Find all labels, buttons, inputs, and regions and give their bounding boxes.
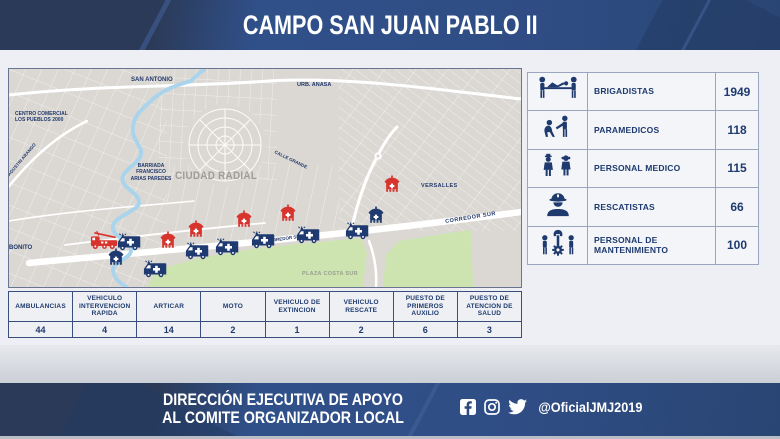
medical-staff-icon	[538, 152, 578, 185]
footer-title: DIRECCIÓN EJECUTIVA DE APOYO AL COMITE O…	[141, 391, 425, 427]
footer-title-line1: DIRECCIÓN EJECUTIVA DE APOYO	[141, 391, 425, 409]
footer-banner: DIRECCIÓN EJECUTIVA DE APOYO AL COMITE O…	[0, 383, 780, 436]
vehicle-table: AMBULANCIAS VEHICULO INTERVENCION RAPIDA…	[8, 291, 522, 338]
twitter-icon	[508, 399, 527, 415]
rescuer-helmet-icon	[539, 191, 577, 223]
personnel-row-brigadistas: BRIGADISTAS 1949	[528, 73, 758, 110]
infographic-page: CAMPO SAN JUAN PABLO II	[0, 0, 780, 439]
footer-title-line2: AL COMITE ORGANIZADOR LOCAL	[141, 409, 425, 427]
map-marker-first-aid-post-red-icon	[160, 232, 177, 249]
map-marker-first-aid-post-red-icon	[188, 221, 205, 238]
separator-band	[0, 345, 780, 383]
vehicle-header-articar: ARTICAR	[137, 292, 200, 321]
personnel-label: BRIGADISTAS	[588, 73, 715, 110]
map-marker-first-aid-post-red-icon	[280, 205, 297, 222]
vehicle-header-extincion: VEHICULO DE EXTINCION	[266, 292, 329, 321]
map-marker-first-aid-post-red-icon	[384, 176, 401, 193]
vehicle-value-primeros-auxilio: 6	[394, 322, 457, 337]
vehicle-header-atencion-salud: PUESTO DE ATENCION DE SALUD	[458, 292, 521, 321]
page-title: CAMPO SAN JUAN PABLO II	[243, 10, 538, 41]
map-marker-fire-truck-icon	[90, 230, 119, 250]
personnel-value: 118	[716, 111, 758, 148]
map-marker-ambulance-icon	[215, 238, 239, 256]
vehicle-value-intervencion-rapida: 4	[73, 322, 136, 337]
personnel-label: PERSONAL DE MANTENIMIENTO	[588, 227, 715, 264]
personnel-label: RESCATISTAS	[588, 188, 715, 225]
vehicle-value-moto: 2	[201, 322, 264, 337]
vehicle-value-extincion: 1	[266, 322, 329, 337]
vehicle-header-ambulancias: AMBULANCIAS	[9, 292, 72, 321]
vehicle-header-primeros-auxilio: PUESTO DE PRIMEROS AUXILIO	[394, 292, 457, 321]
instagram-icon	[484, 399, 500, 415]
personnel-row-personal-medico: PERSONAL MEDICO 115	[528, 150, 758, 187]
personnel-value: 1949	[716, 73, 758, 110]
personnel-row-mantenimiento: PERSONAL DE MANTENIMIENTO 100	[528, 227, 758, 264]
stretcher-carriers-icon	[537, 75, 579, 109]
personnel-row-paramedicos: PARAMEDICOS 118	[528, 111, 758, 148]
vehicle-value-ambulancias: 44	[9, 322, 72, 337]
map-panel: SAN ANTONIO URB. ANASA CENTRO COMERCIAL …	[8, 68, 522, 288]
personnel-value: 66	[716, 188, 758, 225]
vehicle-value-atencion-salud: 3	[458, 322, 521, 337]
vehicle-header-rescate: VEHICULO RESCATE	[330, 292, 393, 321]
map-marker-ambulance-icon	[296, 226, 320, 244]
personnel-row-rescatistas: RESCATISTAS 66	[528, 188, 758, 225]
facebook-icon	[460, 399, 476, 415]
personnel-panel: BRIGADISTAS 1949 PARAMEDICOS 118 PERSONA…	[527, 72, 759, 265]
map-marker-ambulance-icon	[345, 222, 369, 240]
map-marker-health-post-blue-icon	[108, 249, 125, 266]
social-handle: @OficialJMJ2019	[538, 400, 642, 415]
personnel-value: 115	[716, 150, 758, 187]
map-marker-ambulance-icon	[143, 260, 167, 278]
map-marker-first-aid-post-red-icon	[236, 211, 253, 228]
social-row: @OficialJMJ2019	[460, 399, 646, 415]
personnel-value: 100	[716, 227, 758, 264]
paramedic-assist-icon	[538, 114, 578, 147]
maintenance-crew-icon	[538, 229, 578, 262]
map-marker-ambulance-icon	[251, 231, 275, 249]
header-banner: CAMPO SAN JUAN PABLO II	[0, 0, 780, 50]
personnel-label: PARAMEDICOS	[588, 111, 715, 148]
personnel-label: PERSONAL MEDICO	[588, 150, 715, 187]
vehicle-header-intervencion-rapida: VEHICULO INTERVENCION RAPIDA	[73, 292, 136, 321]
map-marker-layer	[9, 69, 521, 287]
map-marker-health-post-blue-icon	[368, 207, 385, 224]
vehicle-value-articar: 14	[137, 322, 200, 337]
vehicle-value-rescate: 2	[330, 322, 393, 337]
vehicle-header-moto: MOTO	[201, 292, 264, 321]
map-marker-ambulance-icon	[185, 242, 209, 260]
